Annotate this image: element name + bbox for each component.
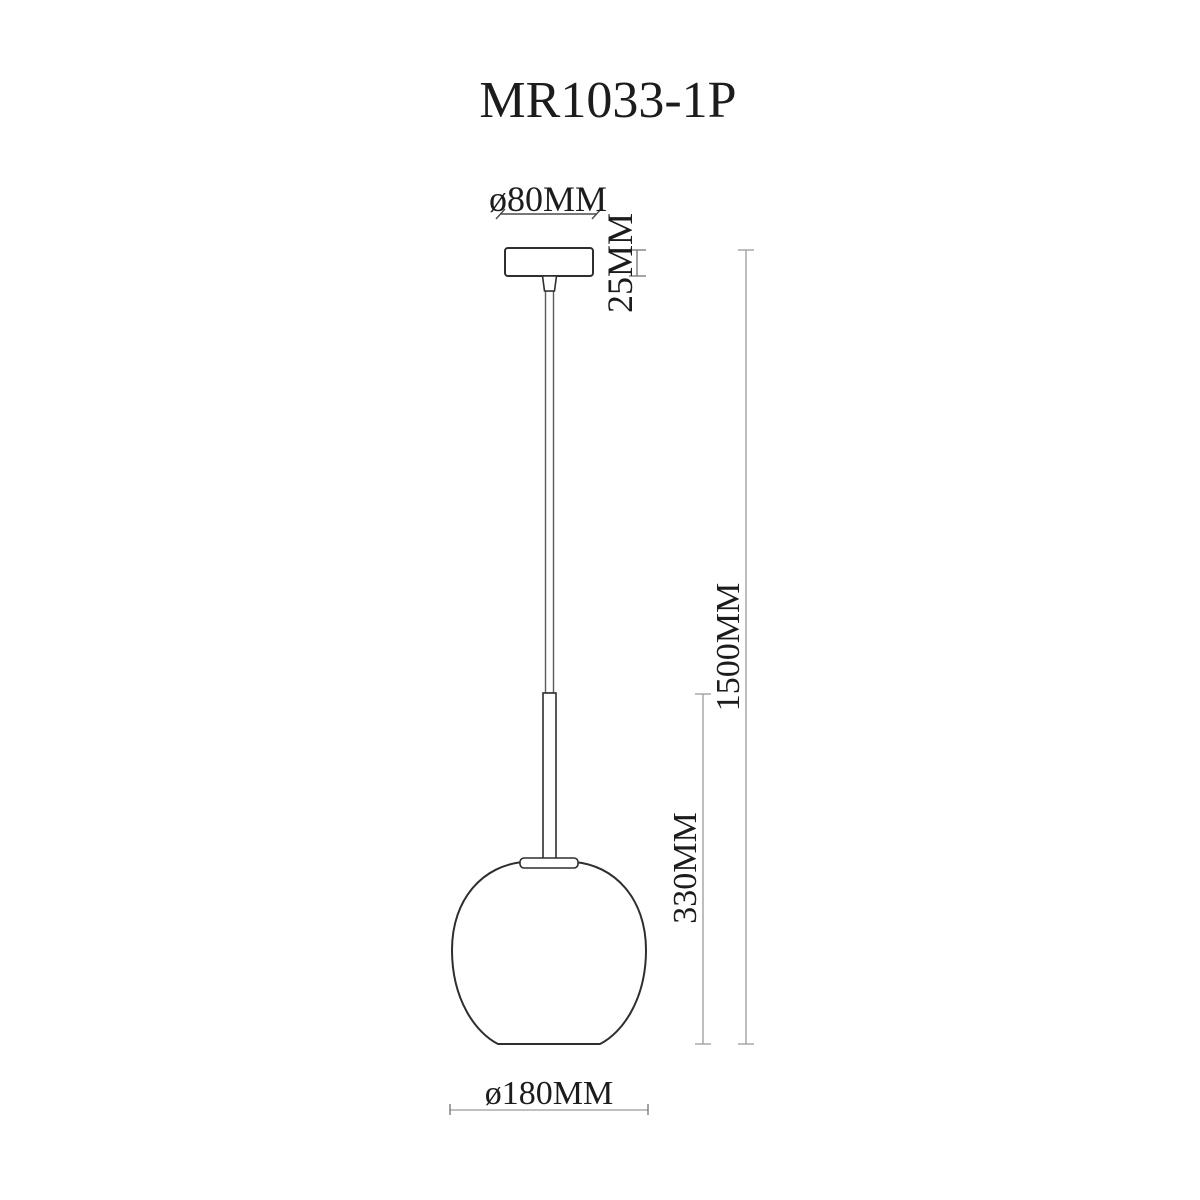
pendant-lamp-dimension-drawing: MR1033-1P ø80MM 25MM 1500MM 330MM ø180MM bbox=[0, 0, 1200, 1200]
globe-shade-outline bbox=[452, 862, 646, 1044]
product-model-title: MR1033-1P bbox=[479, 75, 736, 127]
shade-drop-label: 330MM bbox=[669, 812, 703, 923]
stem-rod bbox=[543, 693, 556, 861]
shade-diameter-label: ø180MM bbox=[485, 1077, 613, 1111]
shade-collar bbox=[520, 858, 578, 868]
canopy-diameter-label: ø80MM bbox=[489, 181, 607, 217]
canopy-wire-connector bbox=[543, 276, 557, 291]
overall-drop-label: 1500MM bbox=[712, 583, 746, 711]
ceiling-canopy-outline bbox=[505, 248, 593, 276]
suspension-wire bbox=[546, 291, 554, 693]
canopy-height-label: 25MM bbox=[602, 213, 638, 313]
